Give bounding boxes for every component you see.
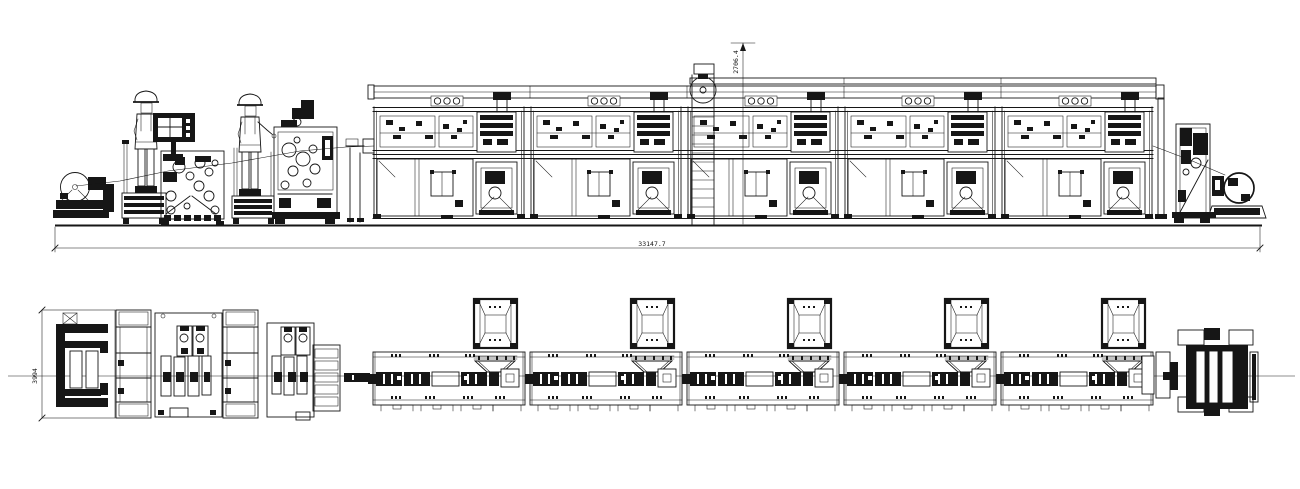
plan-platform-2 [223, 310, 258, 418]
plan-dryer-module-3 [682, 299, 839, 411]
elevation-view [53, 64, 1266, 226]
overall-height-label: 2706.4 [732, 50, 740, 74]
plan-coater-2 [267, 323, 340, 420]
dimension-overall-height: 2706.4 [731, 43, 755, 224]
cad-drawing-sheet: 33147.7 2706.4 3994 [0, 0, 1300, 489]
plan-dryer-module-2 [525, 299, 682, 411]
plan-unwinder [56, 313, 108, 407]
plan-width-label: 3994 [31, 368, 39, 384]
exhaust-tower [690, 64, 716, 224]
plan-coater-1 [155, 313, 222, 417]
exhaust-fan [690, 77, 716, 103]
unwinder [53, 173, 114, 219]
dryer-line [363, 78, 1167, 219]
plan-dryer-modules [368, 299, 1153, 411]
plan-dryer-module-1 [368, 299, 525, 411]
plan-web-bridge [344, 373, 370, 382]
upper-exhaust-duct [690, 78, 1156, 84]
plan-rewinder [1142, 328, 1258, 416]
coater-unit-1 [161, 151, 224, 225]
plan-view: 3994 [8, 299, 1295, 421]
operator-figure-2 [237, 94, 276, 196]
overall-length-label: 33147.7 [638, 240, 665, 248]
web-guide-stand [346, 139, 364, 222]
control-panel [153, 113, 195, 161]
plan-dryer-module-5 [996, 299, 1153, 411]
plan-dryer-module-4 [839, 299, 996, 411]
coater-unit-2 [272, 100, 340, 224]
plan-platform-1 [116, 310, 151, 418]
dimension-overall-length: 33147.7 [52, 227, 1263, 252]
